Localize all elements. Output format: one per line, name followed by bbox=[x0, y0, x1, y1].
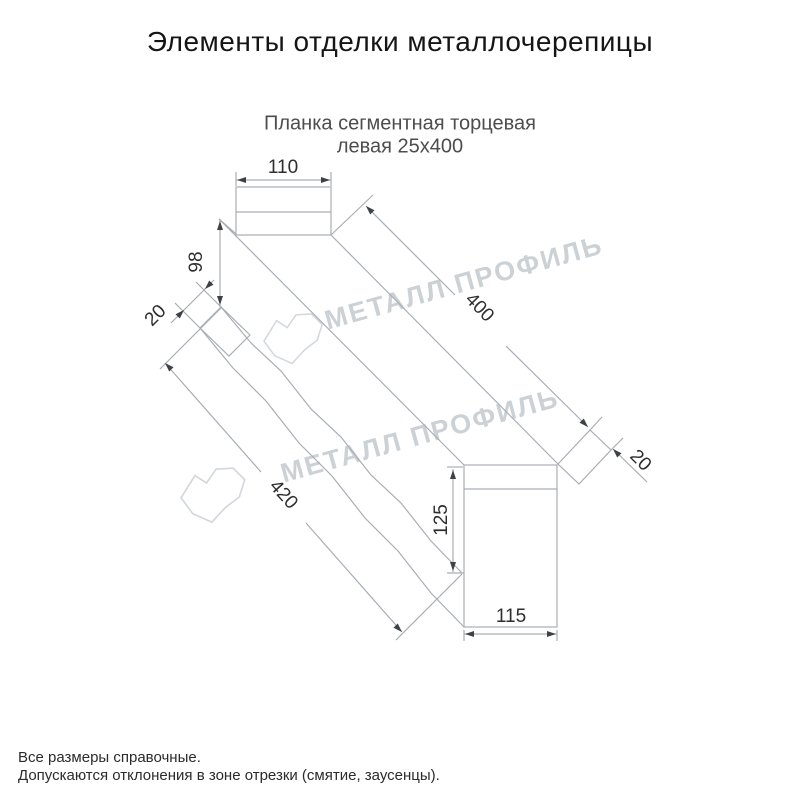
dim-125-label: 125 bbox=[431, 504, 453, 536]
dim-98-label: 98 bbox=[186, 251, 208, 272]
dim-420-graphics bbox=[160, 308, 462, 640]
watermark-logo-upper bbox=[264, 314, 322, 363]
web-bottom-segmental-edge bbox=[221, 307, 462, 573]
dim-400-graphics bbox=[331, 195, 602, 430]
near-fold-tab bbox=[558, 430, 611, 484]
flange-right-edge bbox=[331, 235, 558, 464]
dim-98-graphics bbox=[217, 219, 223, 307]
dim-115-label: 115 bbox=[496, 606, 526, 628]
far-fold-tab bbox=[200, 307, 250, 356]
technical-drawing-canvas bbox=[0, 0, 800, 800]
far-flange-rect bbox=[236, 187, 331, 235]
fold-outer-segmental-edge bbox=[200, 328, 464, 627]
flange-left-edge bbox=[219, 219, 464, 465]
near-end-view bbox=[464, 430, 611, 627]
watermark-logo-lower bbox=[181, 468, 245, 522]
dim-110-label: 110 bbox=[268, 157, 298, 179]
product-drawing-page: МЕТАЛЛ ПРОФИЛЬ МЕТАЛЛ ПРОФИЛЬ bbox=[0, 0, 800, 800]
dim-20-far-graphics bbox=[171, 280, 221, 328]
strip-body bbox=[200, 219, 558, 627]
dim-115-graphics bbox=[464, 630, 557, 641]
